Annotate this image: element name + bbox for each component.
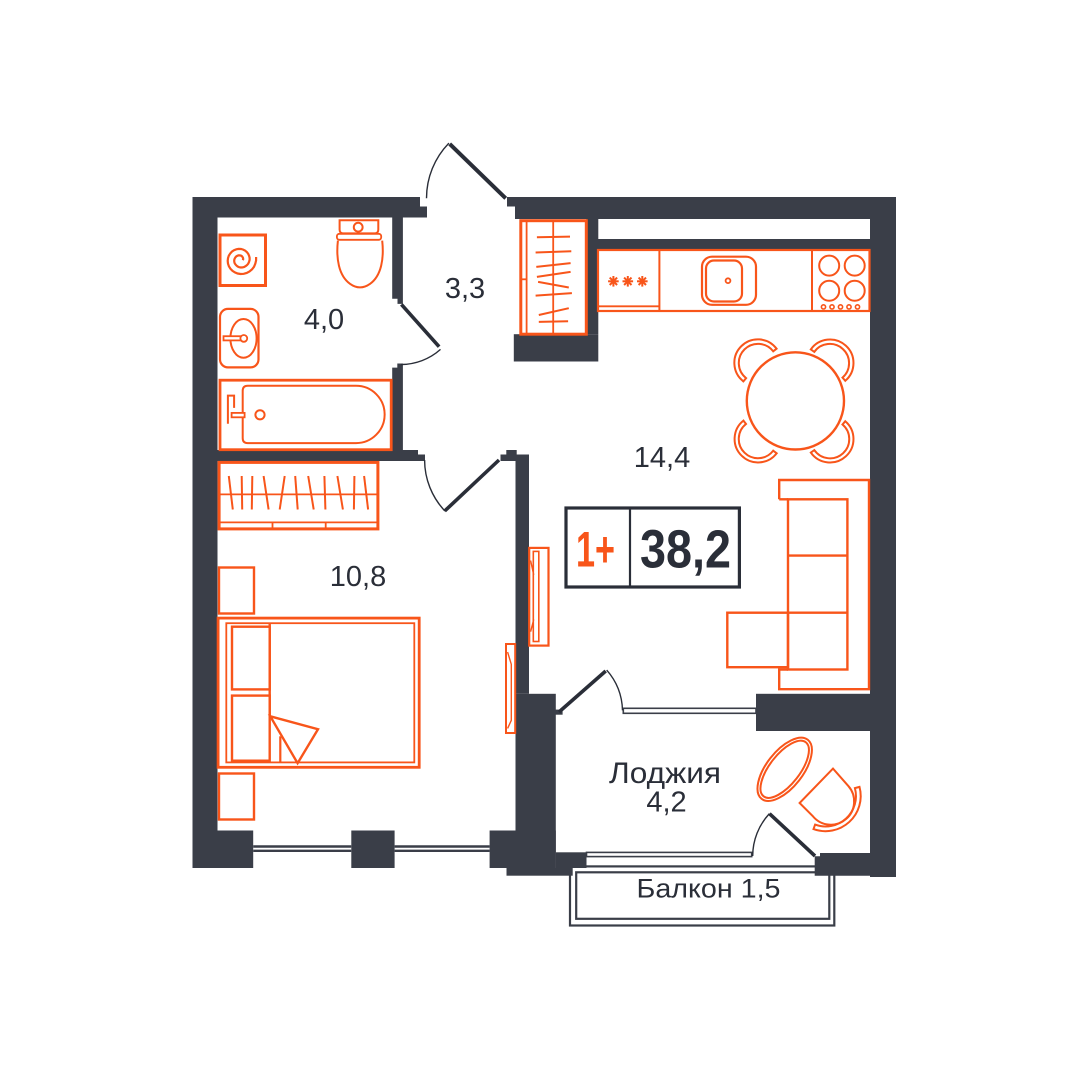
svg-text:Лоджия: Лоджия [609, 757, 721, 790]
svg-text:4,2: 4,2 [646, 787, 686, 819]
svg-text:14,4: 14,4 [634, 442, 690, 474]
svg-text:4,0: 4,0 [304, 304, 344, 336]
svg-text:1+: 1+ [576, 522, 615, 578]
svg-text:38,2: 38,2 [640, 520, 731, 580]
svg-text:10,8: 10,8 [330, 561, 386, 593]
svg-text:Балкон 1,5: Балкон 1,5 [637, 873, 781, 903]
svg-text:3,3: 3,3 [445, 273, 485, 305]
